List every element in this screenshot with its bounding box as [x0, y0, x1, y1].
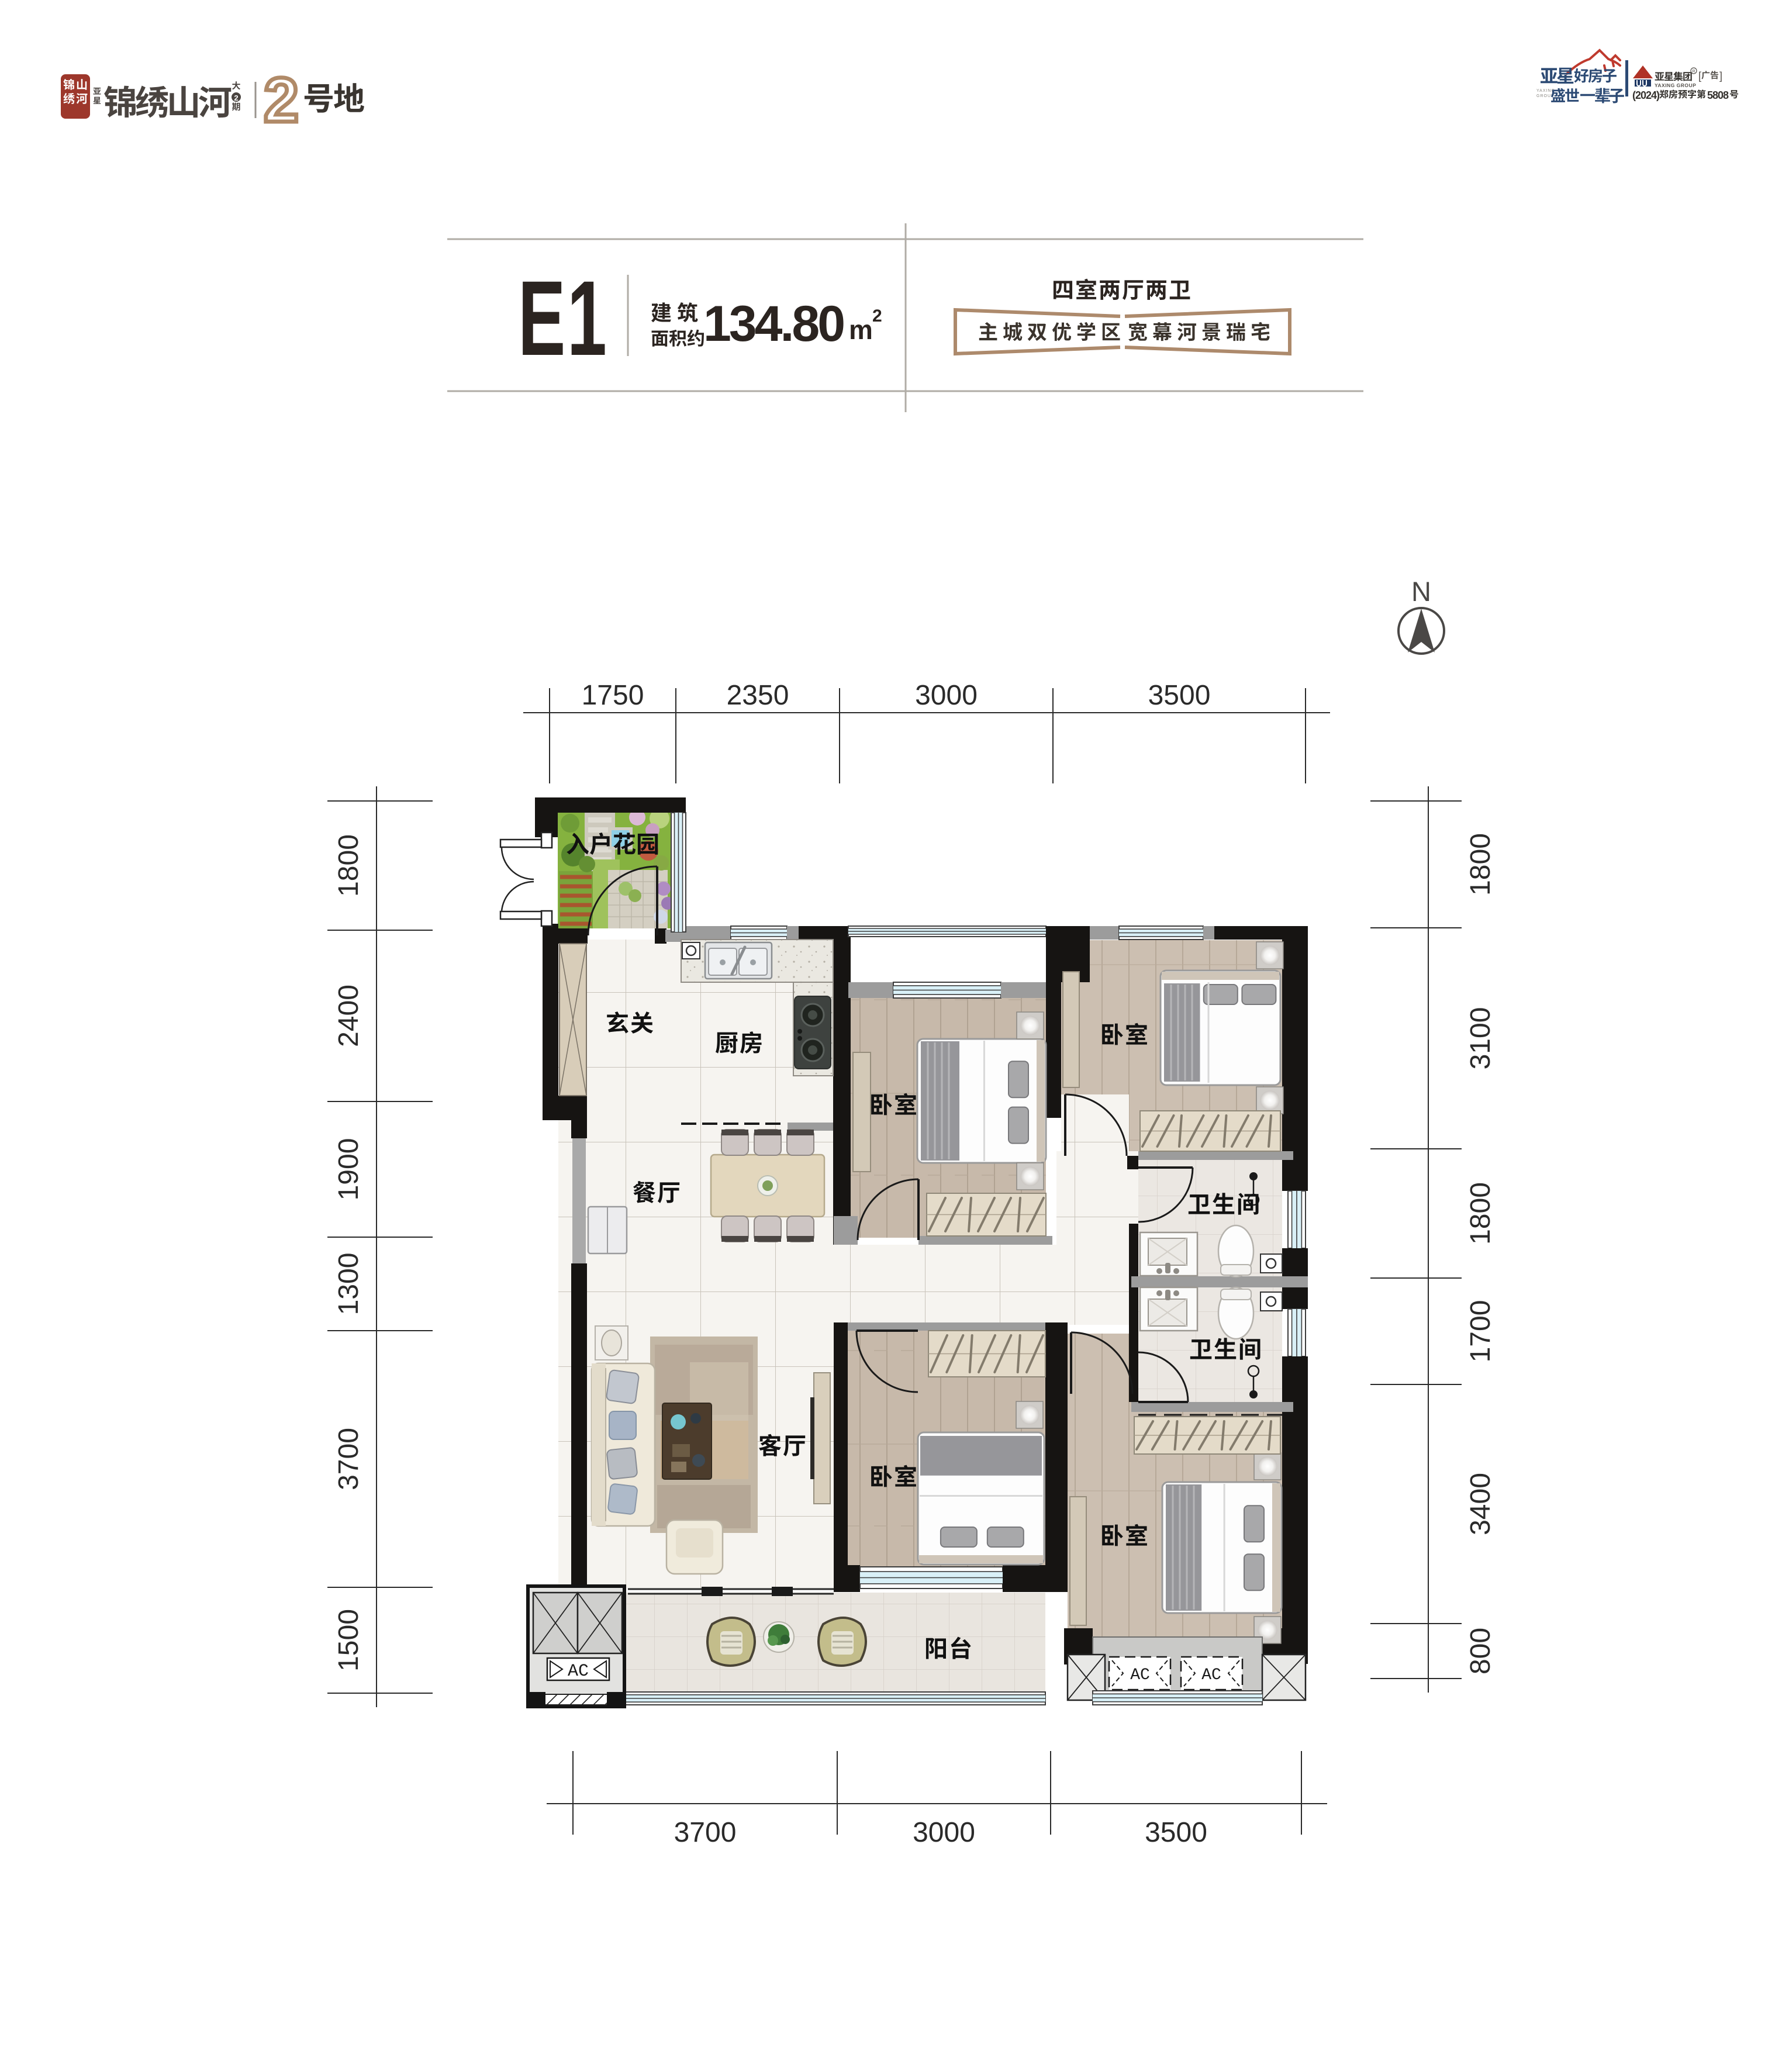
svg-text:[: [ — [1698, 70, 1701, 82]
svg-text:3700: 3700 — [333, 1428, 364, 1490]
svg-text:134.80: 134.80 — [703, 296, 844, 352]
svg-text:3000: 3000 — [915, 680, 978, 711]
svg-text:2400: 2400 — [333, 985, 364, 1047]
svg-text:1500: 1500 — [333, 1609, 364, 1672]
svg-text:3700: 3700 — [674, 1817, 737, 1848]
svg-text:3400: 3400 — [1465, 1473, 1496, 1535]
svg-text:1800: 1800 — [1465, 833, 1496, 896]
svg-text:m: m — [849, 315, 873, 345]
svg-text:AC: AC — [1130, 1666, 1150, 1684]
svg-text:1750: 1750 — [582, 680, 644, 711]
svg-text:E1: E1 — [518, 259, 608, 378]
svg-text:YAXING GROUP: YAXING GROUP — [1655, 82, 1696, 88]
svg-text:5808: 5808 — [1707, 89, 1729, 101]
svg-text:1300: 1300 — [333, 1253, 364, 1315]
svg-text:3000: 3000 — [913, 1817, 975, 1848]
svg-text:1800: 1800 — [1465, 1182, 1496, 1245]
svg-text:3500: 3500 — [1145, 1817, 1207, 1848]
svg-text:1900: 1900 — [333, 1138, 364, 1201]
svg-text:2: 2 — [872, 306, 882, 326]
svg-text:1800: 1800 — [333, 834, 364, 897]
svg-text:2: 2 — [264, 64, 299, 135]
svg-text:2: 2 — [234, 94, 238, 102]
svg-text:R: R — [1692, 70, 1695, 74]
svg-text:N: N — [1411, 576, 1431, 607]
svg-text:3100: 3100 — [1465, 1007, 1496, 1070]
svg-text:(2024): (2024) — [1632, 89, 1660, 101]
svg-text:]: ] — [1719, 70, 1722, 82]
svg-text:1700: 1700 — [1465, 1300, 1496, 1363]
svg-text:2350: 2350 — [727, 680, 789, 711]
svg-text:AC: AC — [568, 1662, 589, 1681]
svg-text:800: 800 — [1465, 1628, 1496, 1674]
svg-text:3500: 3500 — [1148, 680, 1211, 711]
svg-text:AC: AC — [1201, 1666, 1221, 1684]
